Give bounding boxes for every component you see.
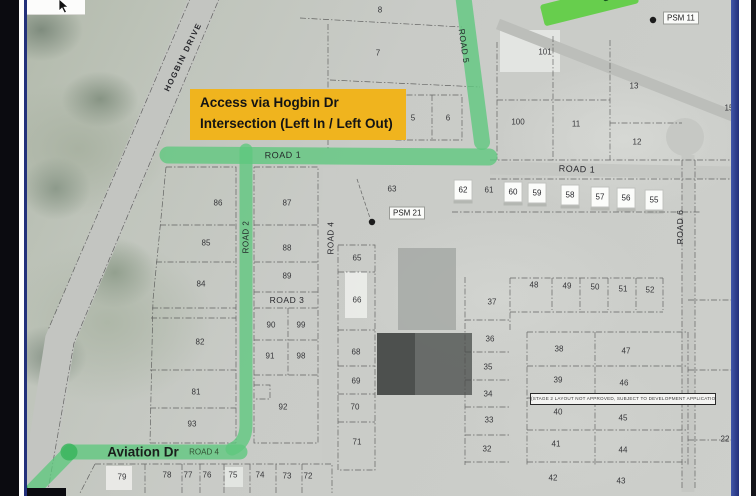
lot-number-34: 34 (484, 390, 493, 399)
road-label-aviation-dr: Aviation Dr (107, 445, 179, 460)
lot-number-12: 12 (633, 138, 642, 147)
lot-number-65: 65 (353, 254, 362, 263)
lot-number-35: 35 (484, 363, 493, 372)
map-frame-border-right (731, 0, 739, 496)
lot-number-33: 33 (485, 416, 494, 425)
lot-number-89: 89 (283, 272, 292, 281)
lot-number-42: 42 (549, 474, 558, 483)
lot-number-46: 46 (620, 379, 629, 388)
street-sign-text: s Rd (601, 0, 630, 4)
lot-number-98: 98 (297, 352, 306, 361)
mouse-cursor-icon (56, 0, 70, 19)
lot-number-6: 6 (446, 114, 450, 123)
lot-number-62: 62 (454, 180, 473, 201)
lot-number-81: 81 (192, 388, 201, 397)
lot-number-84: 84 (197, 280, 206, 289)
lot-number-22: 22 (721, 435, 730, 444)
lot-number-63: 63 (388, 185, 397, 194)
map-label-layer: 8756101131001112156362616059585756558687… (0, 0, 756, 496)
lot-number-73: 73 (283, 472, 292, 481)
lot-number-78: 78 (163, 471, 172, 480)
lot-number-45: 45 (619, 414, 628, 423)
lot-number-8: 8 (378, 6, 382, 15)
lot-number-79: 79 (118, 473, 127, 482)
lot-number-90: 90 (267, 321, 276, 330)
road-label-road-1: ROAD 1 (265, 150, 302, 161)
lot-number-100: 100 (511, 118, 524, 127)
lot-number-40: 40 (554, 408, 563, 417)
road-label-road-4: ROAD 4 (189, 448, 219, 457)
lot-number-50: 50 (591, 283, 600, 292)
lot-number-13: 13 (630, 82, 639, 91)
lot-number-11: 11 (572, 120, 580, 129)
stage-note-text: (STAGE 2 LAYOUT NOT APPROVED, SUBJECT TO… (531, 396, 716, 401)
lot-number-44: 44 (619, 446, 628, 455)
lot-number-75: 75 (229, 471, 238, 480)
lot-number-5: 5 (411, 114, 415, 123)
lot-number-71: 71 (353, 438, 362, 447)
lot-number-76: 76 (203, 471, 212, 480)
lot-number-41: 41 (552, 440, 561, 449)
lot-number-69: 69 (352, 377, 361, 386)
map-frame-border-left (24, 0, 27, 496)
lot-number-86: 86 (214, 199, 223, 208)
road-label-road-6: ROAD 6 (675, 210, 685, 245)
lot-number-70: 70 (351, 403, 360, 412)
psm-marker-psm-11: PSM 11 (663, 12, 699, 25)
lot-number-88: 88 (283, 244, 292, 253)
lot-number-92: 92 (279, 403, 288, 412)
access-annotation-callout: Access via Hogbin Dr Intersection (Left … (190, 89, 406, 140)
lot-number-39: 39 (554, 376, 563, 385)
lot-number-82: 82 (196, 338, 205, 347)
lot-number-36: 36 (486, 335, 495, 344)
lot-number-87: 87 (283, 199, 292, 208)
lot-number-43: 43 (617, 477, 626, 486)
lot-number-58: 58 (561, 185, 580, 206)
stage-note-box: (STAGE 2 LAYOUT NOT APPROVED, SUBJECT TO… (530, 393, 716, 405)
lot-number-51: 51 (619, 285, 628, 294)
lot-number-48: 48 (530, 281, 539, 290)
lot-number-93: 93 (188, 420, 197, 429)
lot-number-99: 99 (297, 321, 306, 330)
road-label-road-2: ROAD 2 (242, 221, 251, 254)
lot-number-57: 57 (591, 187, 610, 208)
lot-number-56: 56 (617, 188, 636, 209)
lot-number-37: 37 (488, 298, 497, 307)
page-margin-right (739, 0, 751, 496)
page-edge-right (751, 0, 756, 496)
road-label-road-1: ROAD 1 (559, 163, 596, 174)
lot-number-61: 61 (485, 186, 494, 195)
page-edge-left (0, 0, 19, 496)
lot-number-47: 47 (622, 347, 631, 356)
road-label-hogbin-drive: HOGBIN DRIVE (162, 21, 203, 93)
lot-number-85: 85 (202, 239, 211, 248)
road-label-road-3: ROAD 3 (270, 295, 305, 305)
lot-number-68: 68 (352, 348, 361, 357)
lot-number-72: 72 (304, 472, 313, 481)
lot-number-91: 91 (266, 352, 275, 361)
callout-line-2: Intersection (Left In / Left Out) (200, 114, 396, 135)
road-label-road-4: ROAD 4 (327, 222, 336, 255)
psm-marker-psm-21: PSM 21 (389, 207, 425, 220)
lot-number-55: 55 (645, 190, 664, 211)
lot-number-101: 101 (538, 48, 551, 57)
lot-number-66: 66 (353, 296, 362, 305)
callout-line-1: Access via Hogbin Dr (200, 93, 396, 114)
lot-number-7: 7 (376, 49, 380, 58)
page-edge-bottom-left (0, 488, 66, 496)
road-label-road-5: ROAD 5 (457, 28, 472, 64)
lot-number-74: 74 (256, 471, 265, 480)
lot-number-32: 32 (483, 445, 492, 454)
lot-number-52: 52 (646, 286, 655, 295)
lot-number-77: 77 (184, 471, 193, 480)
lot-number-60: 60 (504, 182, 523, 203)
lot-number-49: 49 (563, 282, 572, 291)
lot-number-59: 59 (528, 183, 547, 204)
lot-number-38: 38 (555, 345, 564, 354)
